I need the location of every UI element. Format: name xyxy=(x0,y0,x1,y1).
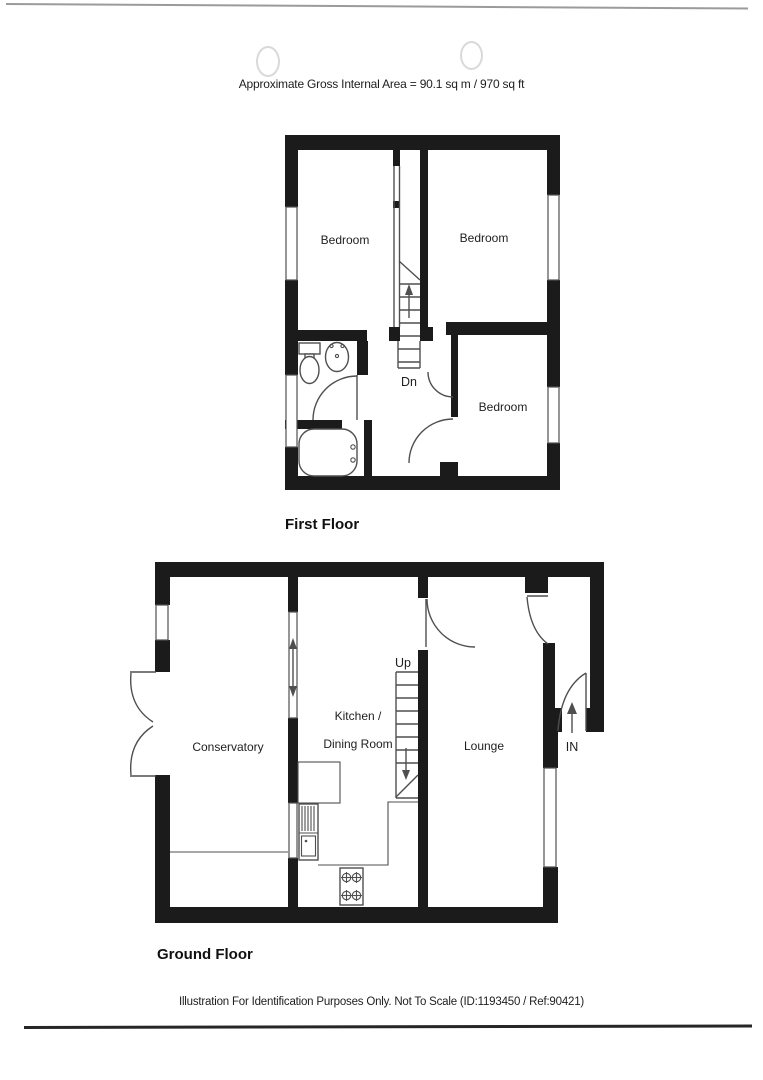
window xyxy=(286,207,297,280)
bathroom-door-arc xyxy=(313,376,357,420)
stairs-down-label: Dn xyxy=(401,375,417,389)
window xyxy=(156,605,168,640)
french-door-arc xyxy=(131,726,153,775)
ground-floor-windows xyxy=(156,605,556,867)
room-label-bedroom-left: Bedroom xyxy=(321,233,370,247)
window xyxy=(544,768,556,867)
room-label-conservatory: Conservatory xyxy=(192,740,263,754)
stairs-up-label: Up xyxy=(395,656,411,670)
lounge-door-arc xyxy=(527,597,548,644)
room-label-bedroom-small: Bedroom xyxy=(479,400,528,414)
room-label-lounge: Lounge xyxy=(464,739,504,753)
stair-direction-arrow-icon xyxy=(405,284,413,295)
window xyxy=(548,195,559,280)
toilet-fixture xyxy=(299,343,320,384)
room-label-bedroom-right: Bedroom xyxy=(460,231,509,245)
french-door-arc xyxy=(131,673,153,722)
window xyxy=(548,387,559,443)
window xyxy=(286,375,297,447)
basin-fixture xyxy=(326,343,349,372)
disclaimer-text: Illustration For Identification Purposes… xyxy=(0,996,763,1008)
staircase-up xyxy=(396,672,418,798)
room-label-kitchen-line1: Kitchen / xyxy=(335,709,382,723)
entrance-arrow-icon xyxy=(567,702,577,733)
bedroom-door-arc xyxy=(409,419,453,463)
landing-door-arc xyxy=(428,372,453,397)
first-floor-title: First Floor xyxy=(285,516,359,533)
first-floor-plan: Bedroom Bedroom Bedroom Dn xyxy=(285,135,560,490)
ground-floor-plan: Conservatory Kitchen / Dining Room Loung… xyxy=(130,562,604,923)
hob-fixture xyxy=(340,868,363,905)
bath-fixture xyxy=(299,429,357,476)
kitchen-door-arc xyxy=(427,599,475,647)
entrance-in-label: IN xyxy=(566,740,579,754)
ground-floor-title: Ground Floor xyxy=(157,946,253,963)
sink-fixture xyxy=(299,804,318,860)
room-label-kitchen-line2: Dining Room xyxy=(323,737,392,751)
stair-direction-arrow-icon xyxy=(402,770,410,780)
floorplan-page: Approximate Gross Internal Area = 90.1 s… xyxy=(0,0,763,1080)
serving-hatch xyxy=(289,803,297,858)
floorplan-drawing: Bedroom Bedroom Bedroom Dn xyxy=(0,0,763,1080)
